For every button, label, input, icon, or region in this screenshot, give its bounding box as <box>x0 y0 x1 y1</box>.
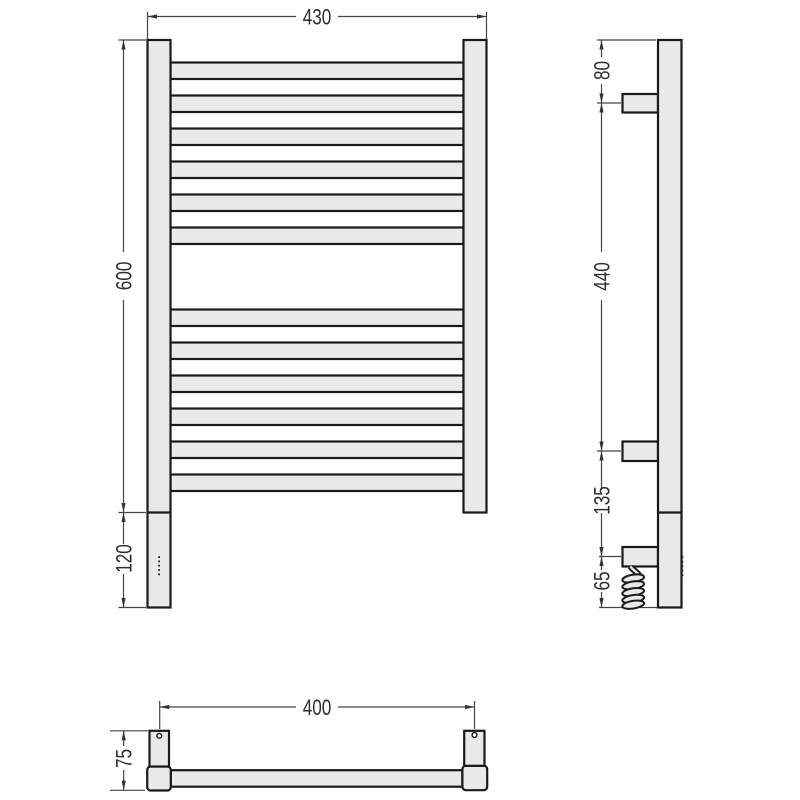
svg-text:135: 135 <box>590 486 615 515</box>
svg-text:75: 75 <box>112 749 137 768</box>
svg-text:65: 65 <box>590 571 615 590</box>
svg-text:600: 600 <box>112 262 137 291</box>
svg-text:80: 80 <box>590 61 615 80</box>
svg-text:400: 400 <box>303 696 332 721</box>
svg-text:120: 120 <box>112 544 137 573</box>
svg-text:440: 440 <box>590 262 615 291</box>
svg-text:430: 430 <box>303 5 332 30</box>
